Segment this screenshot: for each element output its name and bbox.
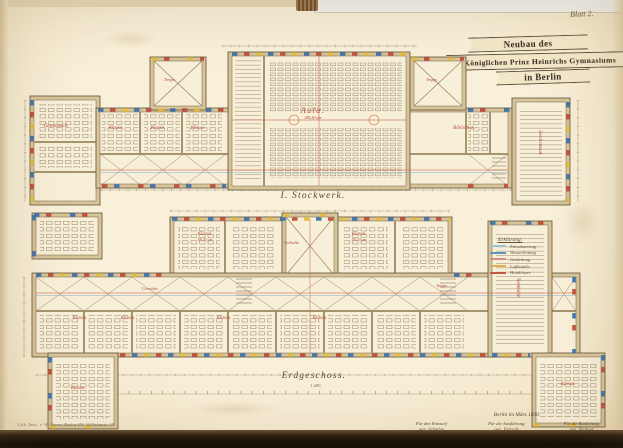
page-top-edge bbox=[0, 0, 302, 7]
signature-date: Berlin im März 1890. bbox=[452, 412, 582, 418]
legend-item: Gasleitung. bbox=[490, 256, 582, 263]
floorplan-upper-stockwerk bbox=[22, 42, 582, 210]
legend-swatch-heizkoerper bbox=[490, 272, 506, 274]
caption-ground-floor: Erdgeschoss. bbox=[246, 371, 382, 381]
page-left-edge bbox=[0, 0, 8, 448]
legend-item: Entwässerung. bbox=[490, 243, 582, 250]
legend-swatch-wasserleitung bbox=[490, 252, 506, 254]
caption-upper-floor: I. Stockwerk. bbox=[248, 191, 378, 201]
legend: Erklärung: Entwässerung. Wasserleitung. … bbox=[490, 237, 582, 276]
sheet-number: Blatt 2. bbox=[570, 8, 620, 19]
legend-item: Heizkörper. bbox=[490, 269, 582, 276]
photo-bottom-edge bbox=[0, 430, 623, 448]
lithographer-credit: Lith. Anst. v. W. Greve, Berlin SW. Wilh… bbox=[18, 422, 168, 427]
legend-swatch-entwaesserung bbox=[490, 245, 506, 247]
legend-item: Luftkanäle. bbox=[490, 263, 582, 270]
legend-swatch-gasleitung bbox=[490, 258, 506, 260]
legend-item: Wasserleitung. bbox=[490, 250, 582, 257]
legend-swatch-luftkanaele bbox=[490, 265, 506, 267]
photographed-drawing-sheet: Blatt 2. Neubau des Königlichen Prinz He… bbox=[0, 0, 623, 448]
scale-label: 1:200. bbox=[286, 383, 346, 388]
binding-tab bbox=[296, 0, 318, 11]
